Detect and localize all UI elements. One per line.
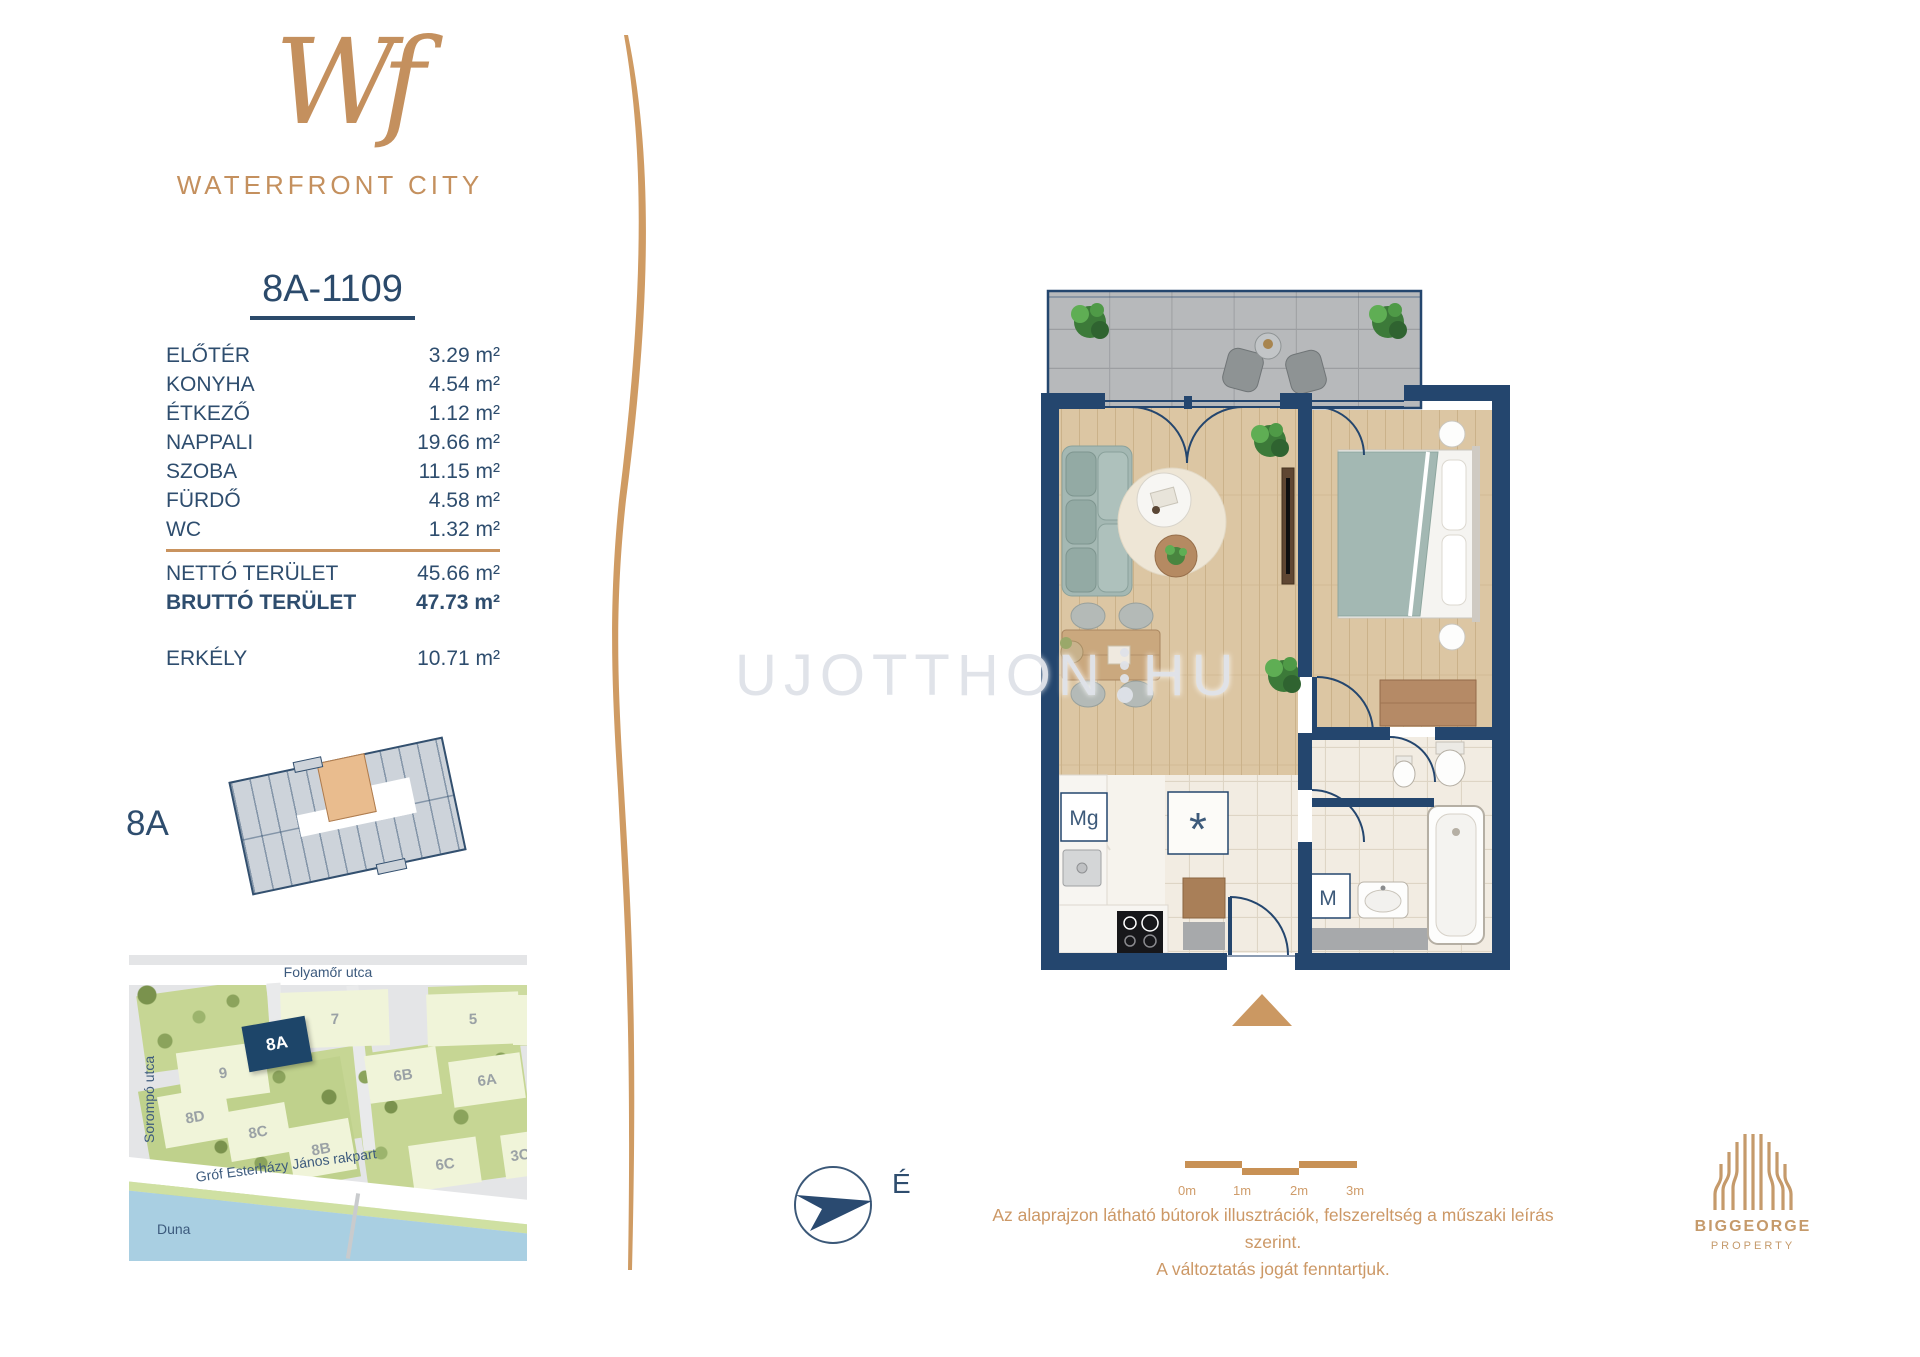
map-building: 6B — [364, 1046, 442, 1104]
site-map: 9 7 5 4 8A 6B 6A 8D 8C 8B 6C 3C Folyamőr… — [129, 955, 527, 1261]
map-building-label: 6B — [392, 1065, 413, 1085]
dresser — [1380, 680, 1476, 726]
dishwasher-label: Mg — [1069, 807, 1098, 830]
unit-id-text: 8A-1109 — [250, 268, 415, 320]
scale-tick: 3m — [1346, 1183, 1364, 1198]
building-name-label: 8A — [126, 804, 169, 844]
scale-segment — [1242, 1168, 1299, 1175]
dishwasher: Mg — [1061, 793, 1107, 841]
balcony-table-deco — [1263, 339, 1273, 349]
bathtub — [1428, 806, 1484, 944]
scale-tick: 0m — [1178, 1183, 1196, 1198]
scale-segment — [1299, 1161, 1357, 1168]
map-building: 6C — [408, 1136, 482, 1191]
toilet — [1435, 742, 1465, 786]
room-label: FÜRDŐ — [166, 486, 241, 515]
north-triangle-icon — [1232, 994, 1292, 1026]
room-label: ELŐTÉR — [166, 341, 250, 370]
scale-tick: 1m — [1233, 1183, 1251, 1198]
hall-mat — [1183, 922, 1225, 950]
map-street-label: Sorompó utca — [141, 1056, 157, 1143]
disclaimer-line1: Az alaprajzon látható bútorok illusztrác… — [990, 1202, 1556, 1256]
netto-row: NETTÓ TERÜLET 45.66 m² — [166, 559, 500, 588]
balcony-area: 10.71 m² — [417, 644, 500, 673]
map-building: 5 — [426, 991, 520, 1046]
door-leaf — [1228, 897, 1232, 955]
closet-asterisk-icon: * — [1189, 803, 1207, 855]
map-building-label: 6C — [434, 1154, 455, 1174]
room-area: 4.58 m² — [429, 486, 500, 515]
map-building: 8C — [223, 1102, 293, 1162]
nightstand — [1439, 421, 1465, 447]
brutto-label: BRUTTÓ TERÜLET — [166, 588, 356, 617]
bathroom-shaft — [1312, 928, 1428, 950]
map-building-label: 9 — [218, 1064, 229, 1082]
watermark-text-left: UJOTTHON — [735, 642, 1107, 709]
room-label: WC — [166, 515, 201, 544]
door-leaf — [1312, 677, 1317, 733]
scale-bar: 0m 1m 2m 3m — [1185, 1161, 1357, 1201]
map-building-label: 8D — [184, 1107, 206, 1127]
disclaimer-line2: A változtatás jogát fenntartjuk. — [990, 1256, 1556, 1283]
watermark-dots-icon — [1117, 648, 1133, 703]
divider-curve-shape — [612, 35, 646, 1270]
room-area: 11.15 m² — [419, 457, 500, 486]
room-area: 3.29 m² — [429, 341, 500, 370]
room-label: NAPPALI — [166, 428, 253, 457]
bathroom-sink — [1358, 882, 1408, 918]
tv-console — [1282, 468, 1294, 584]
table-row: ELŐTÉR 3.29 m² — [166, 341, 500, 370]
map-building-label: 3C — [509, 1145, 527, 1165]
map-street-label: Folyamőr utca — [129, 964, 527, 980]
developer-subtitle: PROPERTY — [1668, 1240, 1838, 1252]
table-row: NAPPALI 19.66 m² — [166, 428, 500, 457]
unit-title: 8A-1109 — [165, 268, 500, 320]
scale-tick: 2m — [1290, 1183, 1308, 1198]
disclaimer: Az alaprajzon látható bútorok illusztrác… — [990, 1202, 1556, 1283]
scale-segment — [1185, 1161, 1242, 1168]
map-building-label: 7 — [331, 1010, 340, 1027]
washer-label: M — [1319, 887, 1337, 910]
netto-label: NETTÓ TERÜLET — [166, 559, 338, 588]
table-row: FÜRDŐ 4.58 m² — [166, 486, 500, 515]
biggeorge-building-icon — [1705, 1132, 1801, 1214]
brutto-row: BRUTTÓ TERÜLET 47.73 m² — [166, 588, 500, 617]
room-area: 4.54 m² — [429, 370, 500, 399]
room-area-table: ELŐTÉR 3.29 m² KONYHA 4.54 m² ÉTKEZŐ 1.1… — [166, 341, 500, 673]
washing-machine: M — [1306, 874, 1350, 918]
map-river-label: Duna — [157, 1221, 190, 1237]
watermark: UJOTTHON HU — [735, 642, 1195, 709]
netto-area: 45.66 m² — [417, 559, 500, 588]
hall-wardrobe — [1183, 878, 1225, 918]
bidet — [1393, 756, 1415, 787]
developer-name: BIGGEORGE — [1668, 1218, 1838, 1236]
room-area: 19.66 m² — [417, 428, 500, 457]
compass — [786, 1155, 906, 1255]
waterfront-logo-monogram: Wf — [248, 22, 438, 142]
table-row: WC 1.32 m² — [166, 515, 500, 544]
stove — [1117, 911, 1163, 953]
room-label: ÉTKEZŐ — [166, 399, 250, 428]
totals-divider — [166, 549, 500, 552]
north-label: É — [892, 1168, 911, 1200]
building-keyplan — [228, 737, 466, 896]
map-building-label: 8A — [265, 1032, 290, 1055]
brand-name: WATERFRONT CITY — [140, 170, 520, 201]
room-area: 1.12 m² — [429, 399, 500, 428]
developer-logo: BIGGEORGE PROPERTY — [1668, 1132, 1838, 1252]
side-table — [1155, 535, 1197, 577]
map-building-label: 5 — [469, 1010, 478, 1027]
room-label: KONYHA — [166, 370, 255, 399]
table-row: ÉTKEZŐ 1.12 m² — [166, 399, 500, 428]
table-row: SZOBA 11.15 m² — [166, 457, 500, 486]
map-building-label: 8C — [247, 1122, 269, 1142]
balcony — [1048, 291, 1421, 408]
map-building: 4 — [513, 995, 527, 1045]
nightstand — [1439, 624, 1465, 650]
coffee-table — [1137, 473, 1191, 527]
table-row: KONYHA 4.54 m² — [166, 370, 500, 399]
room-area: 1.32 m² — [429, 515, 500, 544]
balcony-row: ERKÉLY 10.71 m² — [166, 644, 500, 673]
brutto-area: 47.73 m² — [416, 588, 500, 617]
kitchen-sink — [1063, 850, 1101, 886]
hall-closet: * — [1168, 792, 1228, 855]
balcony-label: ERKÉLY — [166, 644, 247, 673]
room-label: SZOBA — [166, 457, 237, 486]
map-building-label: 6A — [476, 1070, 497, 1090]
page-divider-curve — [598, 30, 678, 1280]
bed — [1338, 446, 1480, 622]
watermark-text-right: HU — [1143, 642, 1241, 709]
